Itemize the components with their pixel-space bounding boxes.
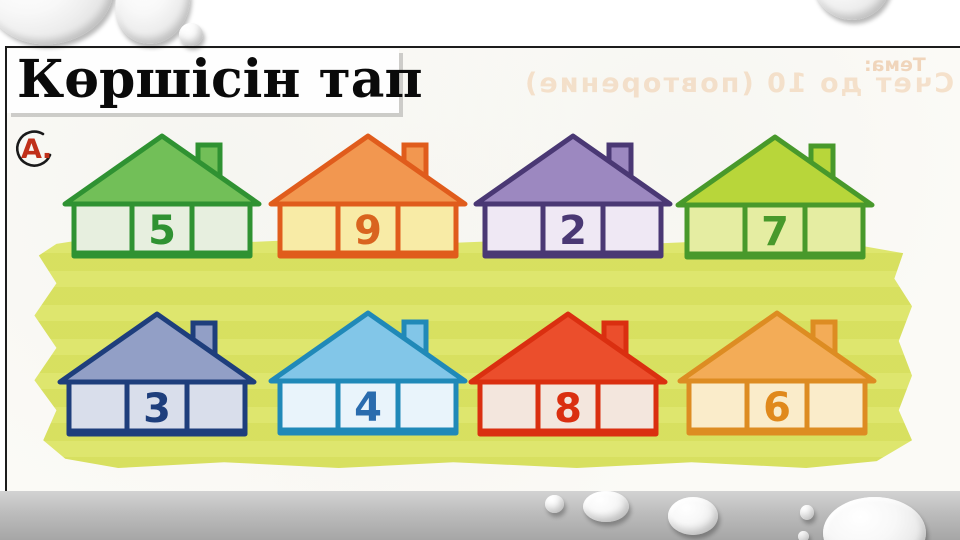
house-number: 2 (559, 208, 587, 254)
bubble-icon (813, 0, 891, 20)
house-9: 9 (268, 133, 468, 263)
bubble-icon (545, 495, 564, 513)
top-decoration-strip (0, 0, 960, 46)
house-number: 7 (761, 209, 789, 255)
house-6: 6 (677, 310, 877, 440)
bubble-icon (798, 531, 809, 540)
roof (680, 313, 874, 381)
house-3: 3 (57, 311, 257, 441)
house-8: 8 (468, 311, 668, 441)
roof (65, 136, 259, 204)
house-number: 6 (763, 385, 791, 431)
house-4: 4 (268, 310, 468, 440)
bottom-decoration-bar (0, 491, 960, 540)
house-5: 5 (62, 133, 262, 263)
house-number: 3 (143, 386, 171, 432)
house-number: 5 (148, 208, 176, 254)
house-number: 9 (354, 208, 382, 254)
roof (471, 314, 665, 382)
house-7: 7 (675, 134, 875, 264)
house-number: 8 (554, 386, 582, 432)
roof (678, 137, 872, 205)
roof (271, 313, 465, 381)
worksheet-image: Тема: Счет до 10 (повторение) Көршісін т… (5, 46, 960, 493)
roof (476, 136, 670, 204)
house-2: 2 (473, 133, 673, 263)
house-number: 4 (354, 385, 382, 431)
bubble-icon (668, 497, 718, 535)
bubble-icon (583, 491, 629, 522)
slide: { "slide": { "title": "Көршісін тап", "s… (0, 0, 960, 540)
bubble-icon (800, 505, 814, 520)
roof (60, 314, 254, 382)
houses-grid: 59273486 (7, 48, 960, 493)
bubble-icon (823, 497, 926, 540)
bubble-icon (179, 23, 203, 46)
roof (271, 136, 465, 204)
